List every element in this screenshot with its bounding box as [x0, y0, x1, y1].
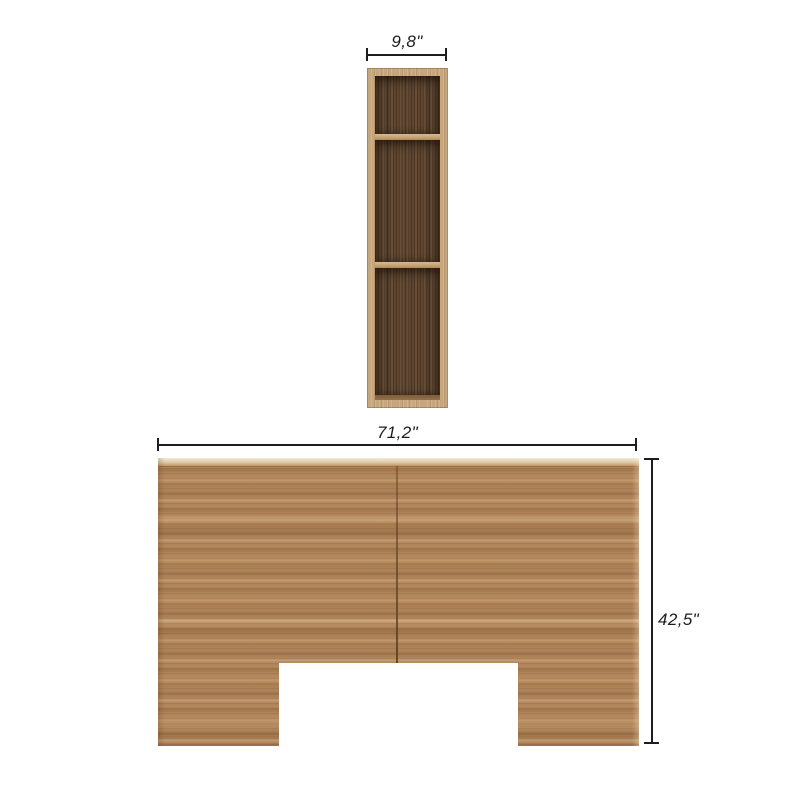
headboard-width-label: 71,2" [158, 423, 637, 443]
wall-shelf-unit [367, 68, 448, 408]
shelf-compartment-middle [375, 140, 440, 262]
shelf-compartment-top [375, 76, 440, 134]
shelf-compartment-bottom [375, 268, 440, 395]
headboard-width-tick-right [635, 438, 637, 451]
headboard-height-line [651, 459, 653, 743]
headboard-width-tick-left [157, 438, 159, 451]
headboard-bottom-cutout [279, 663, 518, 746]
shelf-width-label: 9,8" [367, 32, 447, 52]
shelf-floor [375, 395, 440, 400]
headboard-width-line [158, 444, 637, 446]
headboard-height-tick-top [644, 458, 659, 460]
headboard-height-label: 42,5" [658, 610, 699, 630]
shelf-width-tick-left [366, 48, 368, 61]
headboard-panel [158, 458, 639, 746]
shelf-width-tick-right [445, 48, 447, 61]
shelf-width-line [367, 54, 447, 56]
headboard-height-tick-bottom [644, 742, 659, 744]
product-dimension-diagram: 9,8" 71,2" 42,5" [0, 0, 800, 800]
